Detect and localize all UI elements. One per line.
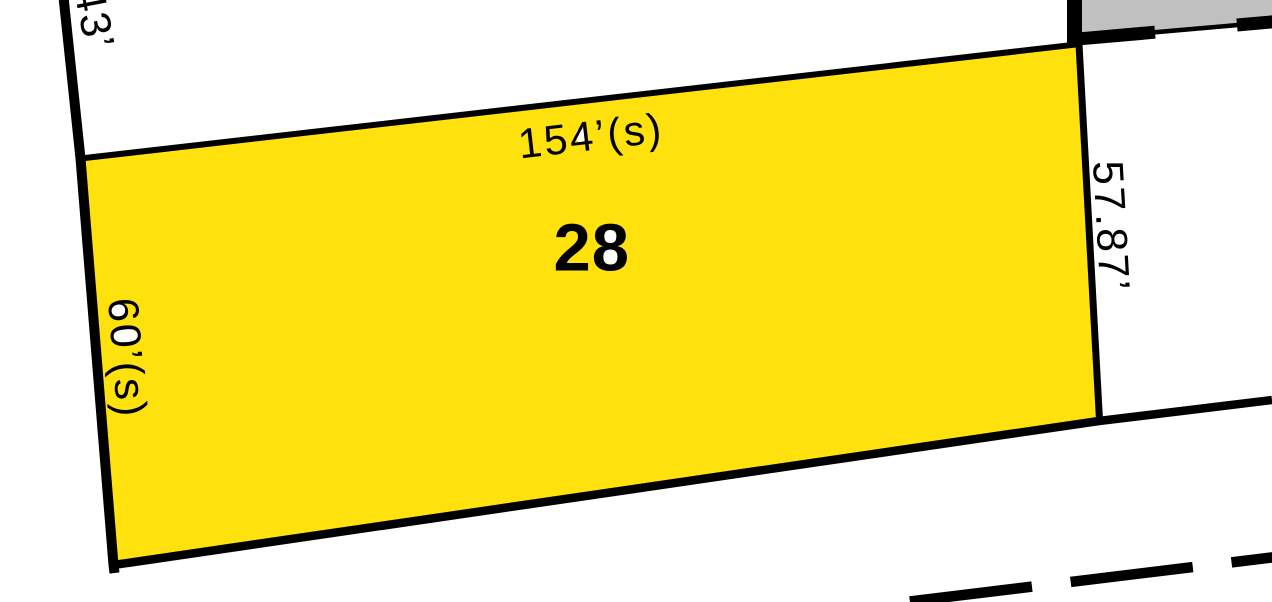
- svg-text:28: 28: [554, 211, 631, 286]
- svg-text:60’(s): 60’(s): [98, 296, 155, 420]
- svg-text:57.87’: 57.87’: [1083, 159, 1138, 294]
